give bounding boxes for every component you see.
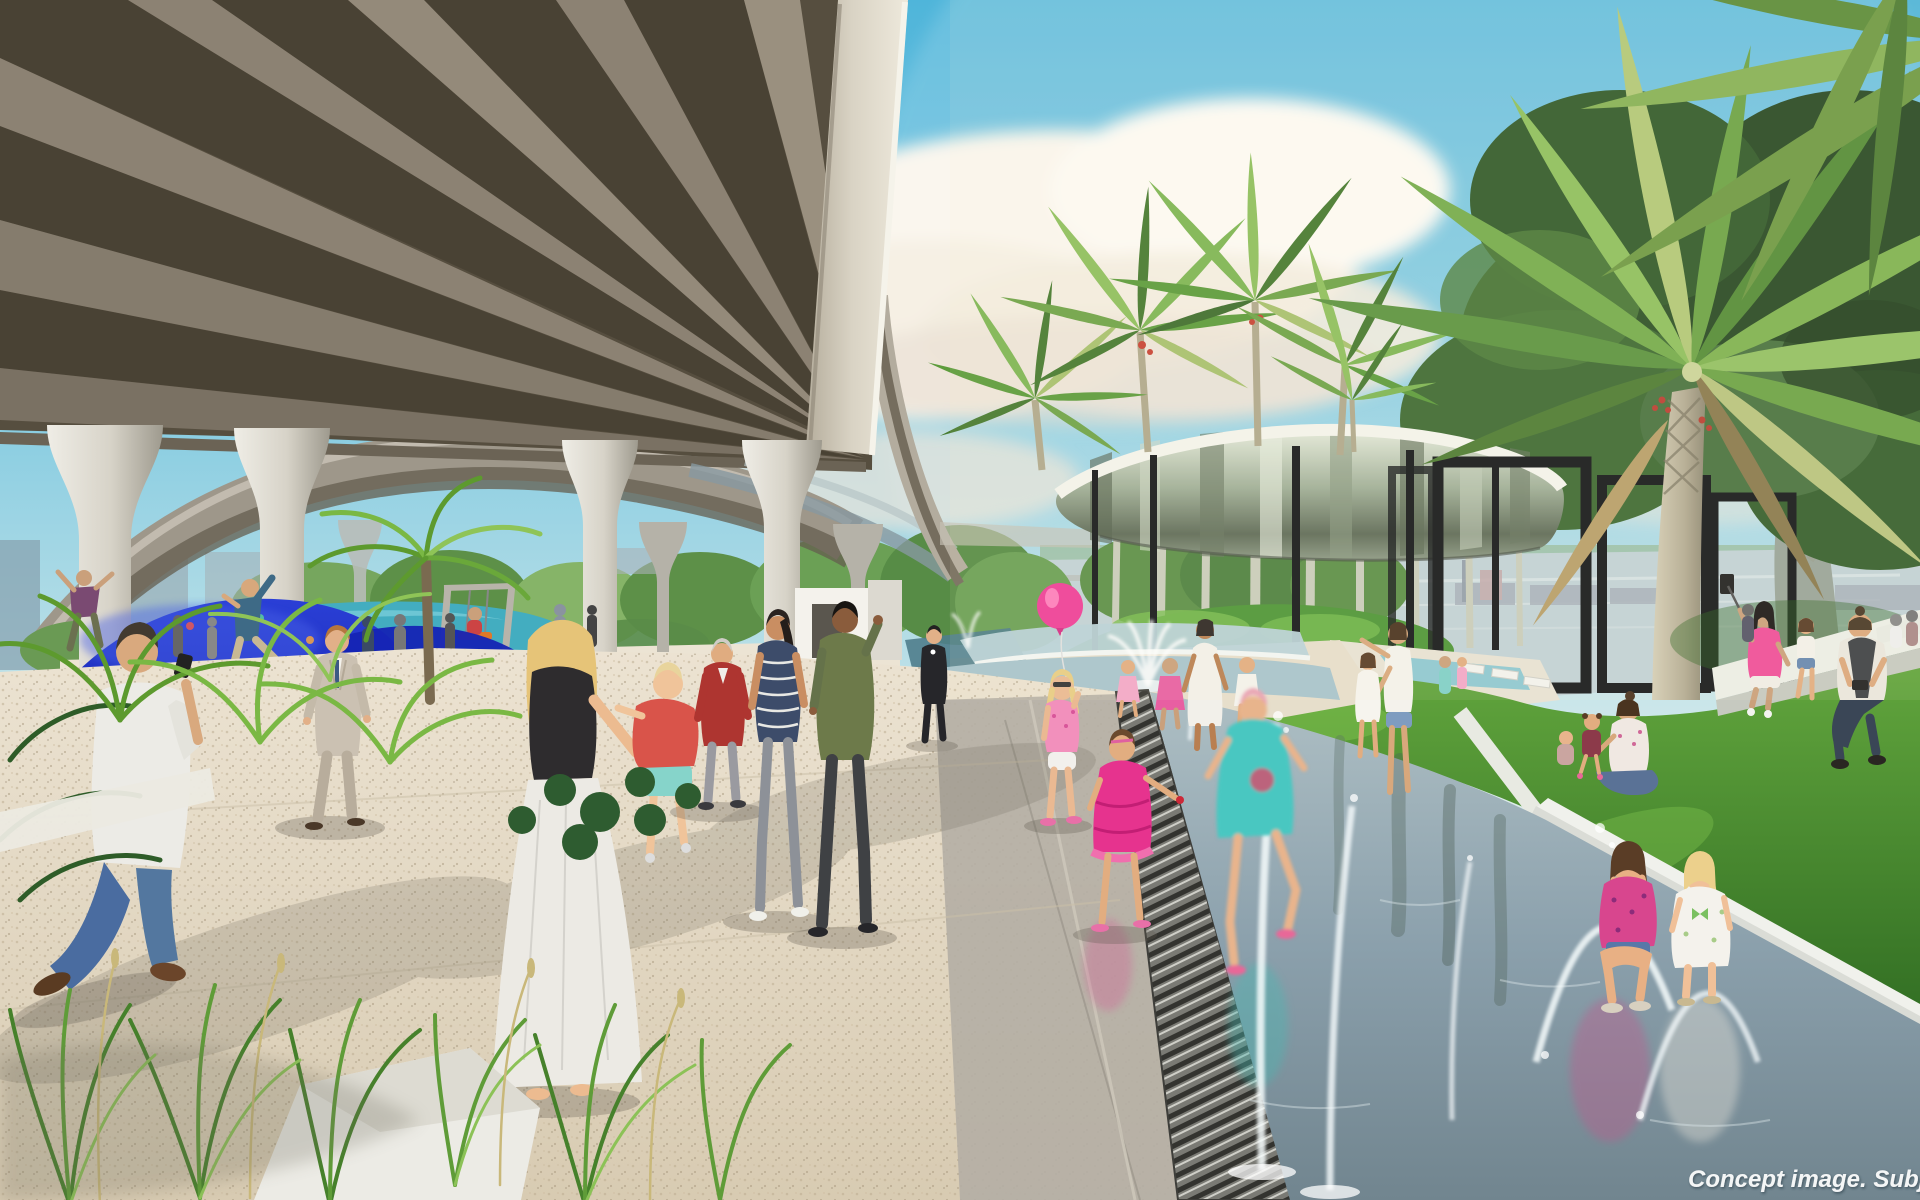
scene-canvas: Concept image. Subjec bbox=[0, 0, 1920, 1200]
concept-rendering: Concept image. Subjec bbox=[0, 0, 1920, 1200]
baby bbox=[1557, 731, 1574, 765]
watermark: Concept image. Subjec bbox=[1688, 1166, 1920, 1193]
warm-light-wash bbox=[950, 0, 1920, 700]
